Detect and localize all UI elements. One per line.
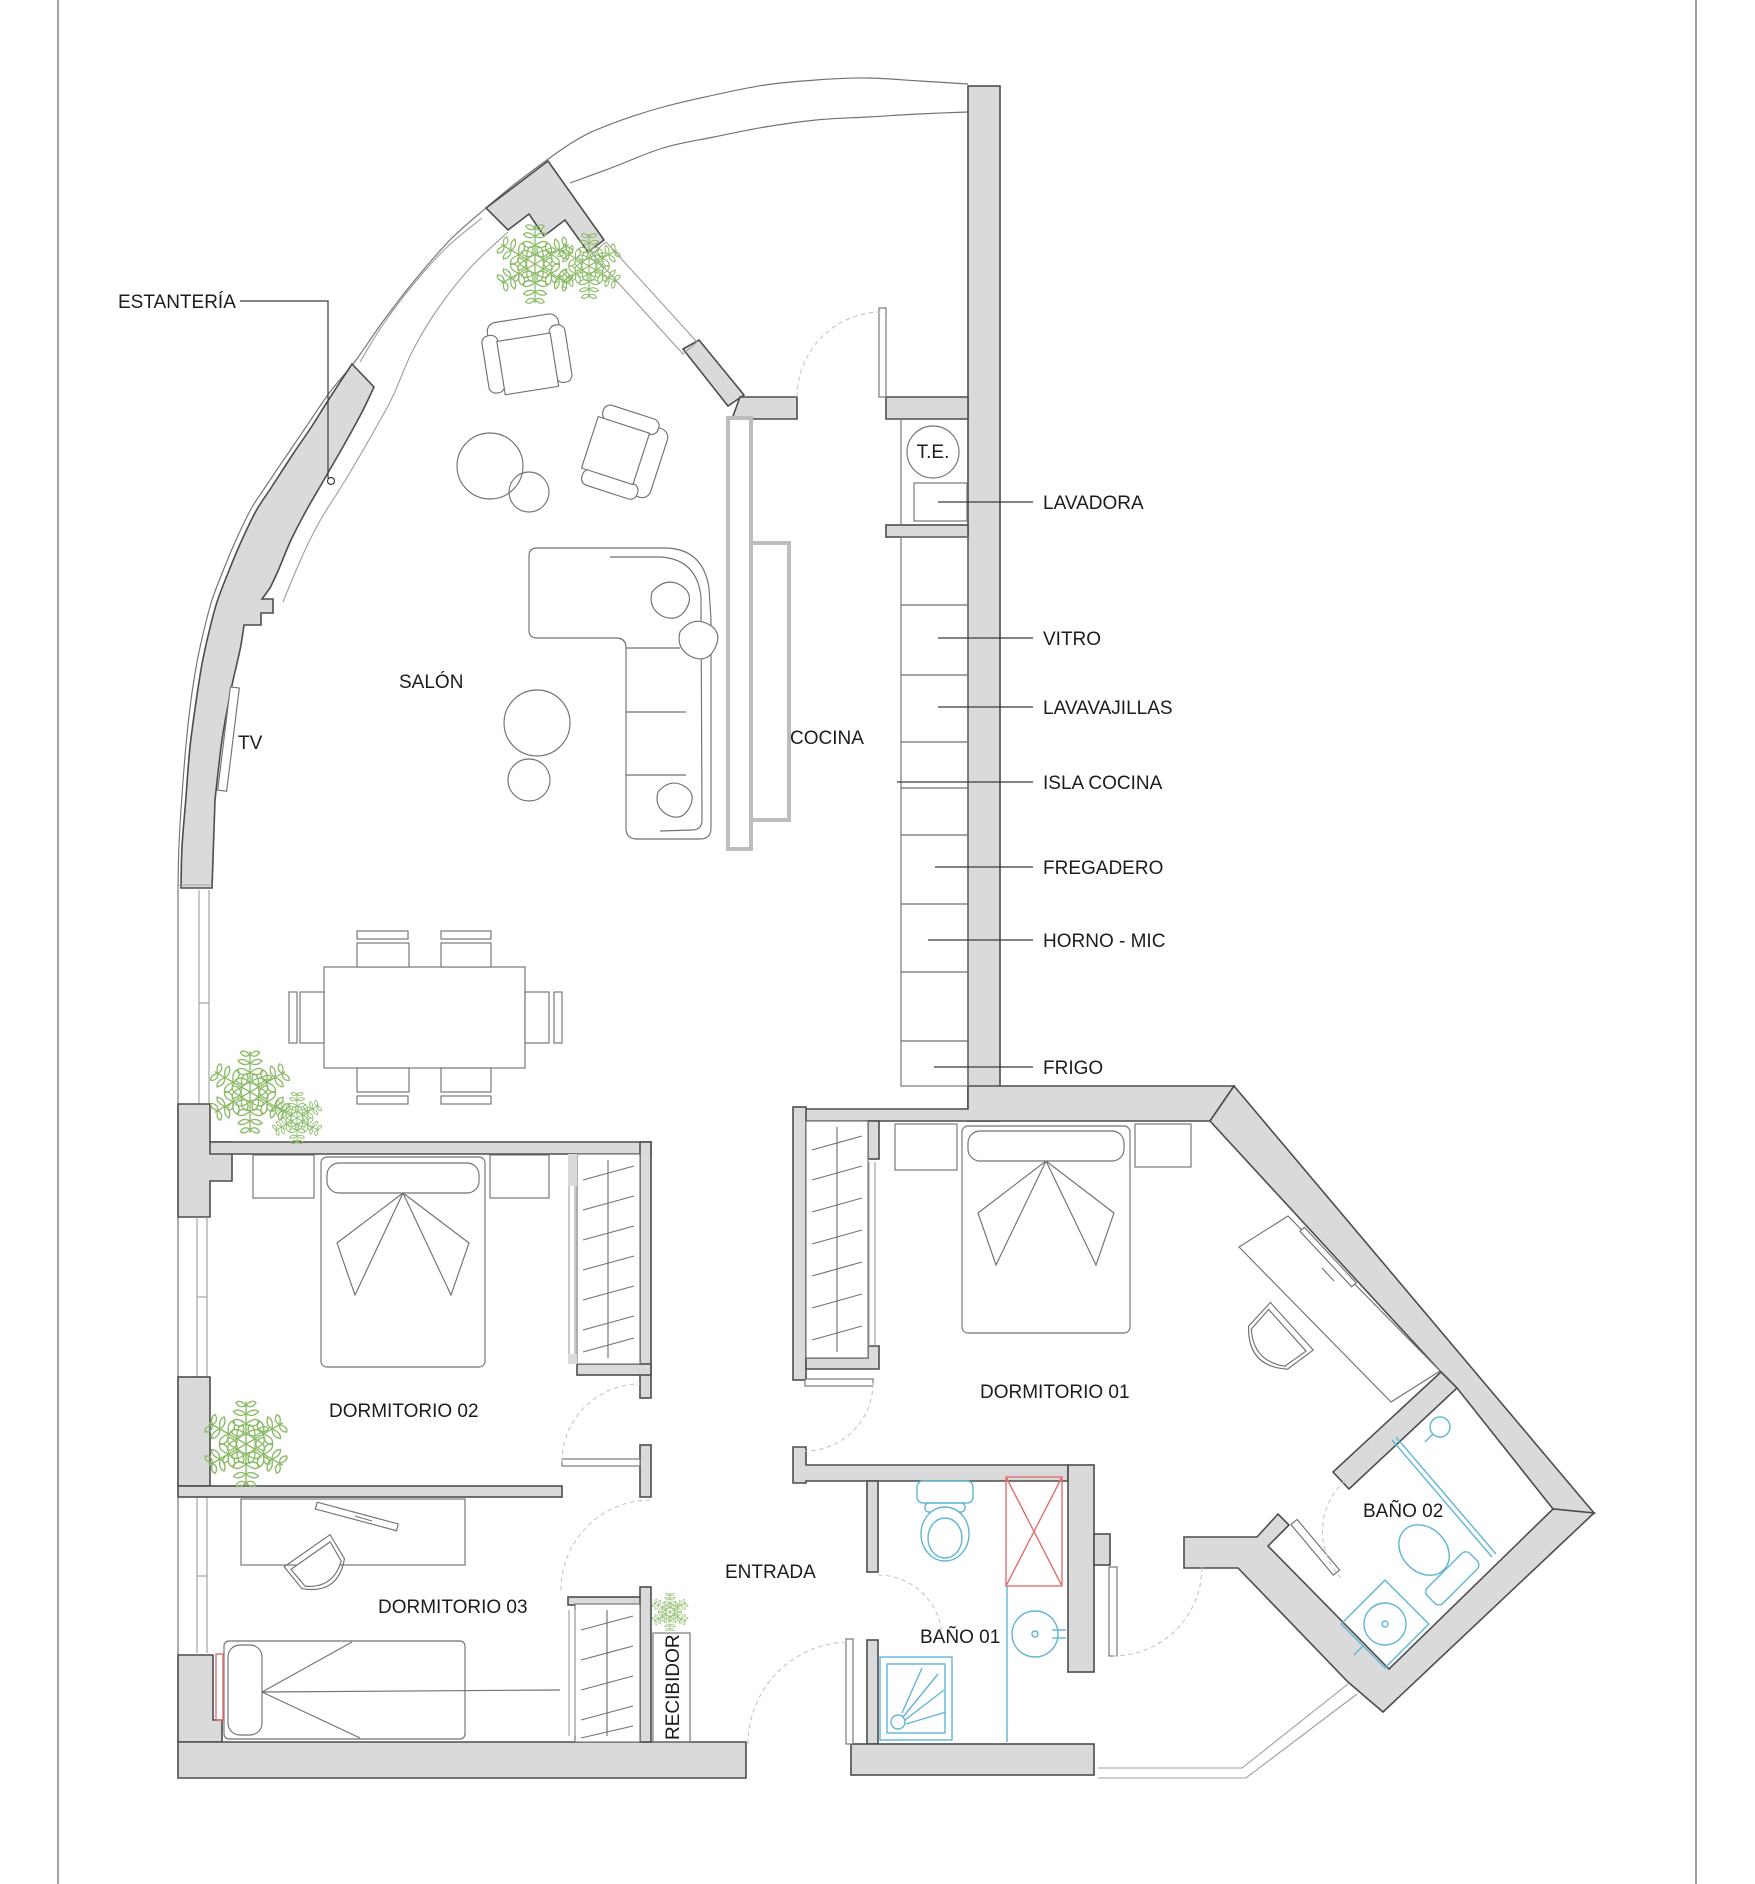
svg-text:TV: TV — [238, 733, 263, 754]
svg-text:T.E.: T.E. — [917, 442, 950, 463]
svg-text:SALÓN: SALÓN — [399, 671, 463, 693]
svg-text:RECIBIDOR: RECIBIDOR — [663, 1634, 684, 1740]
svg-text:HORNO - MIC: HORNO - MIC — [1043, 931, 1165, 952]
svg-text:BAÑO 02: BAÑO 02 — [1363, 1500, 1443, 1522]
svg-text:VITRO: VITRO — [1043, 629, 1101, 650]
svg-text:ESTANTERÍA: ESTANTERÍA — [118, 292, 236, 313]
svg-text:COCINA: COCINA — [790, 728, 864, 749]
svg-text:ENTRADA: ENTRADA — [725, 1562, 816, 1583]
svg-text:DORMITORIO 03: DORMITORIO 03 — [378, 1597, 528, 1618]
svg-text:DORMITORIO 01: DORMITORIO 01 — [980, 1382, 1130, 1403]
svg-text:BAÑO 01: BAÑO 01 — [920, 1626, 1000, 1648]
svg-text:ISLA COCINA: ISLA COCINA — [1043, 773, 1163, 794]
svg-text:FRIGO: FRIGO — [1043, 1058, 1103, 1079]
svg-text:DORMITORIO 02: DORMITORIO 02 — [329, 1401, 479, 1422]
svg-text:LAVADORA: LAVADORA — [1043, 493, 1144, 514]
svg-text:LAVAVAJILLAS: LAVAVAJILLAS — [1043, 698, 1173, 719]
svg-text:FREGADERO: FREGADERO — [1043, 858, 1163, 879]
